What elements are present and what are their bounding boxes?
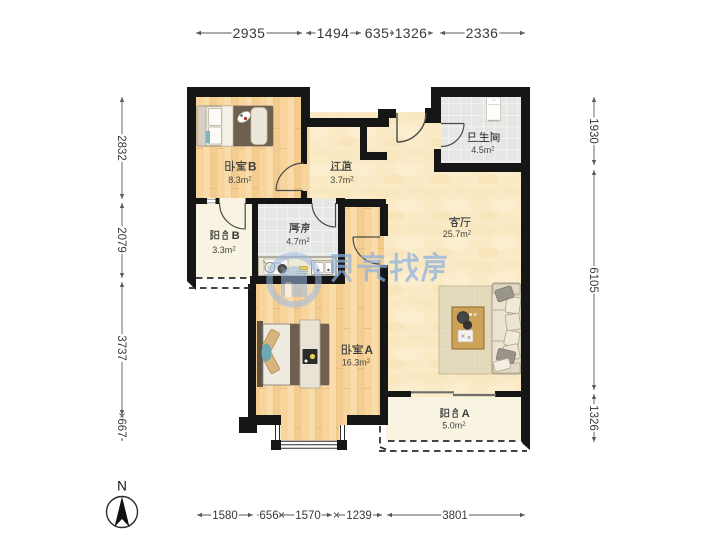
svg-text:1239: 1239 [346, 510, 372, 522]
svg-text:6105: 6105 [587, 267, 599, 293]
svg-text:3801: 3801 [442, 510, 468, 522]
svg-text:1580: 1580 [212, 510, 238, 522]
svg-text:667: 667 [115, 418, 127, 437]
svg-text:1570: 1570 [295, 510, 321, 522]
svg-text:25.7m2: 25.7m2 [443, 229, 472, 239]
svg-text:A: A [462, 408, 470, 420]
svg-text:2935: 2935 [233, 25, 266, 41]
svg-text:635: 635 [365, 25, 390, 41]
svg-text:1494: 1494 [317, 25, 350, 41]
svg-text:2832: 2832 [115, 135, 127, 161]
svg-text:1326: 1326 [587, 405, 599, 431]
svg-text:1326: 1326 [395, 25, 428, 41]
svg-text:N: N [117, 479, 127, 494]
svg-text:16.3m2: 16.3m2 [342, 358, 371, 368]
svg-text:2336: 2336 [466, 25, 499, 41]
svg-text:656: 656 [259, 510, 278, 522]
svg-text:3737: 3737 [115, 335, 127, 361]
svg-text:1930: 1930 [587, 118, 599, 144]
svg-text:2079: 2079 [115, 227, 127, 253]
svg-text:B: B [248, 160, 257, 173]
svg-text:A: A [364, 344, 373, 357]
svg-text:B: B [232, 230, 240, 242]
